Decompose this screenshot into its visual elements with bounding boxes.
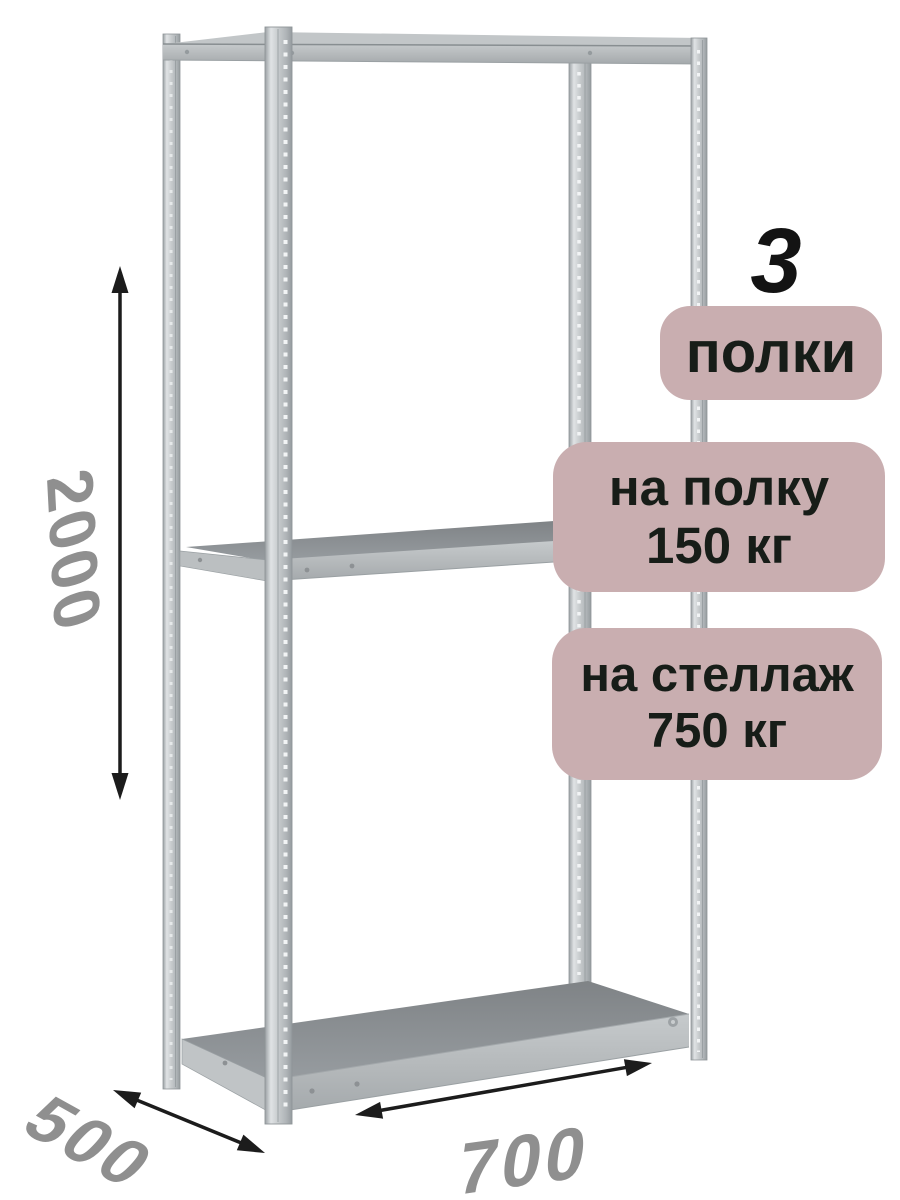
per-rack-load-badge: на стеллаж 750 кг <box>552 628 882 780</box>
per-shelf-load-line2: 150 кг <box>646 517 792 575</box>
shelf-bottom <box>182 981 689 1113</box>
height-dimension-arrow <box>112 266 129 800</box>
rack-upright-back-left <box>163 34 180 1089</box>
shelf-top <box>163 32 704 64</box>
product-image: 2000 500 700 3 полки на полку 150 кг на … <box>0 0 900 1200</box>
per-rack-load-line2: 750 кг <box>647 704 787 760</box>
depth-dimension-label: 500 <box>8 1083 172 1200</box>
shelf-count-badge: полки <box>660 306 882 400</box>
rack-upright-front-left <box>265 27 292 1124</box>
rack-illustration: 2000 500 700 <box>0 0 900 1200</box>
width-dimension-label: 700 <box>453 1109 596 1200</box>
shelf-count-number: 3 <box>728 218 824 308</box>
shelf-middle <box>180 521 554 581</box>
per-shelf-load-badge: на полку 150 кг <box>553 442 885 592</box>
height-dimension-label: 2000 <box>32 461 113 642</box>
shelf-count-label: полки <box>686 320 857 386</box>
per-shelf-load-line1: на полку <box>609 459 829 517</box>
per-rack-load-line1: на стеллаж <box>580 648 853 704</box>
